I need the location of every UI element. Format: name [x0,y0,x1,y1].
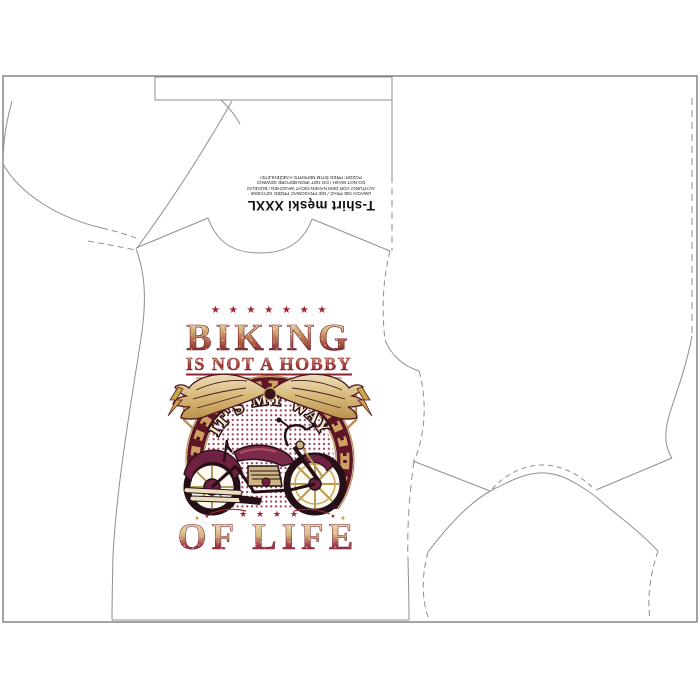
tshirt-print-graphic: ★ ★ ★ ★ ★ ★ ★ BIKING BIKING IS NOT A HOB… [0,0,700,700]
svg-text:OF LIFE: OF LIFE [178,517,359,558]
right-lightning-icon [357,387,372,416]
wing-center-emblem [264,388,276,400]
stars-top-row: ★ ★ ★ ★ ★ ★ ★ [211,304,329,316]
headlight [296,441,304,449]
engine [248,466,282,486]
left-lightning-icon [168,387,183,416]
subtitle-hobby: IS NOT A HOBBY IS NOT A HOBBY [186,354,352,378]
svg-text:IS NOT A HOBBY: IS NOT A HOBBY [186,354,352,374]
svg-text:BIKING: BIKING [186,317,351,359]
pattern-sheet: T-shirt męski XXXL UWAGA! NIE PRAĆ / NIE… [0,0,700,700]
title-biking: BIKING BIKING [186,317,351,359]
title-of-life: OF LIFE OF LIFE [178,517,359,558]
